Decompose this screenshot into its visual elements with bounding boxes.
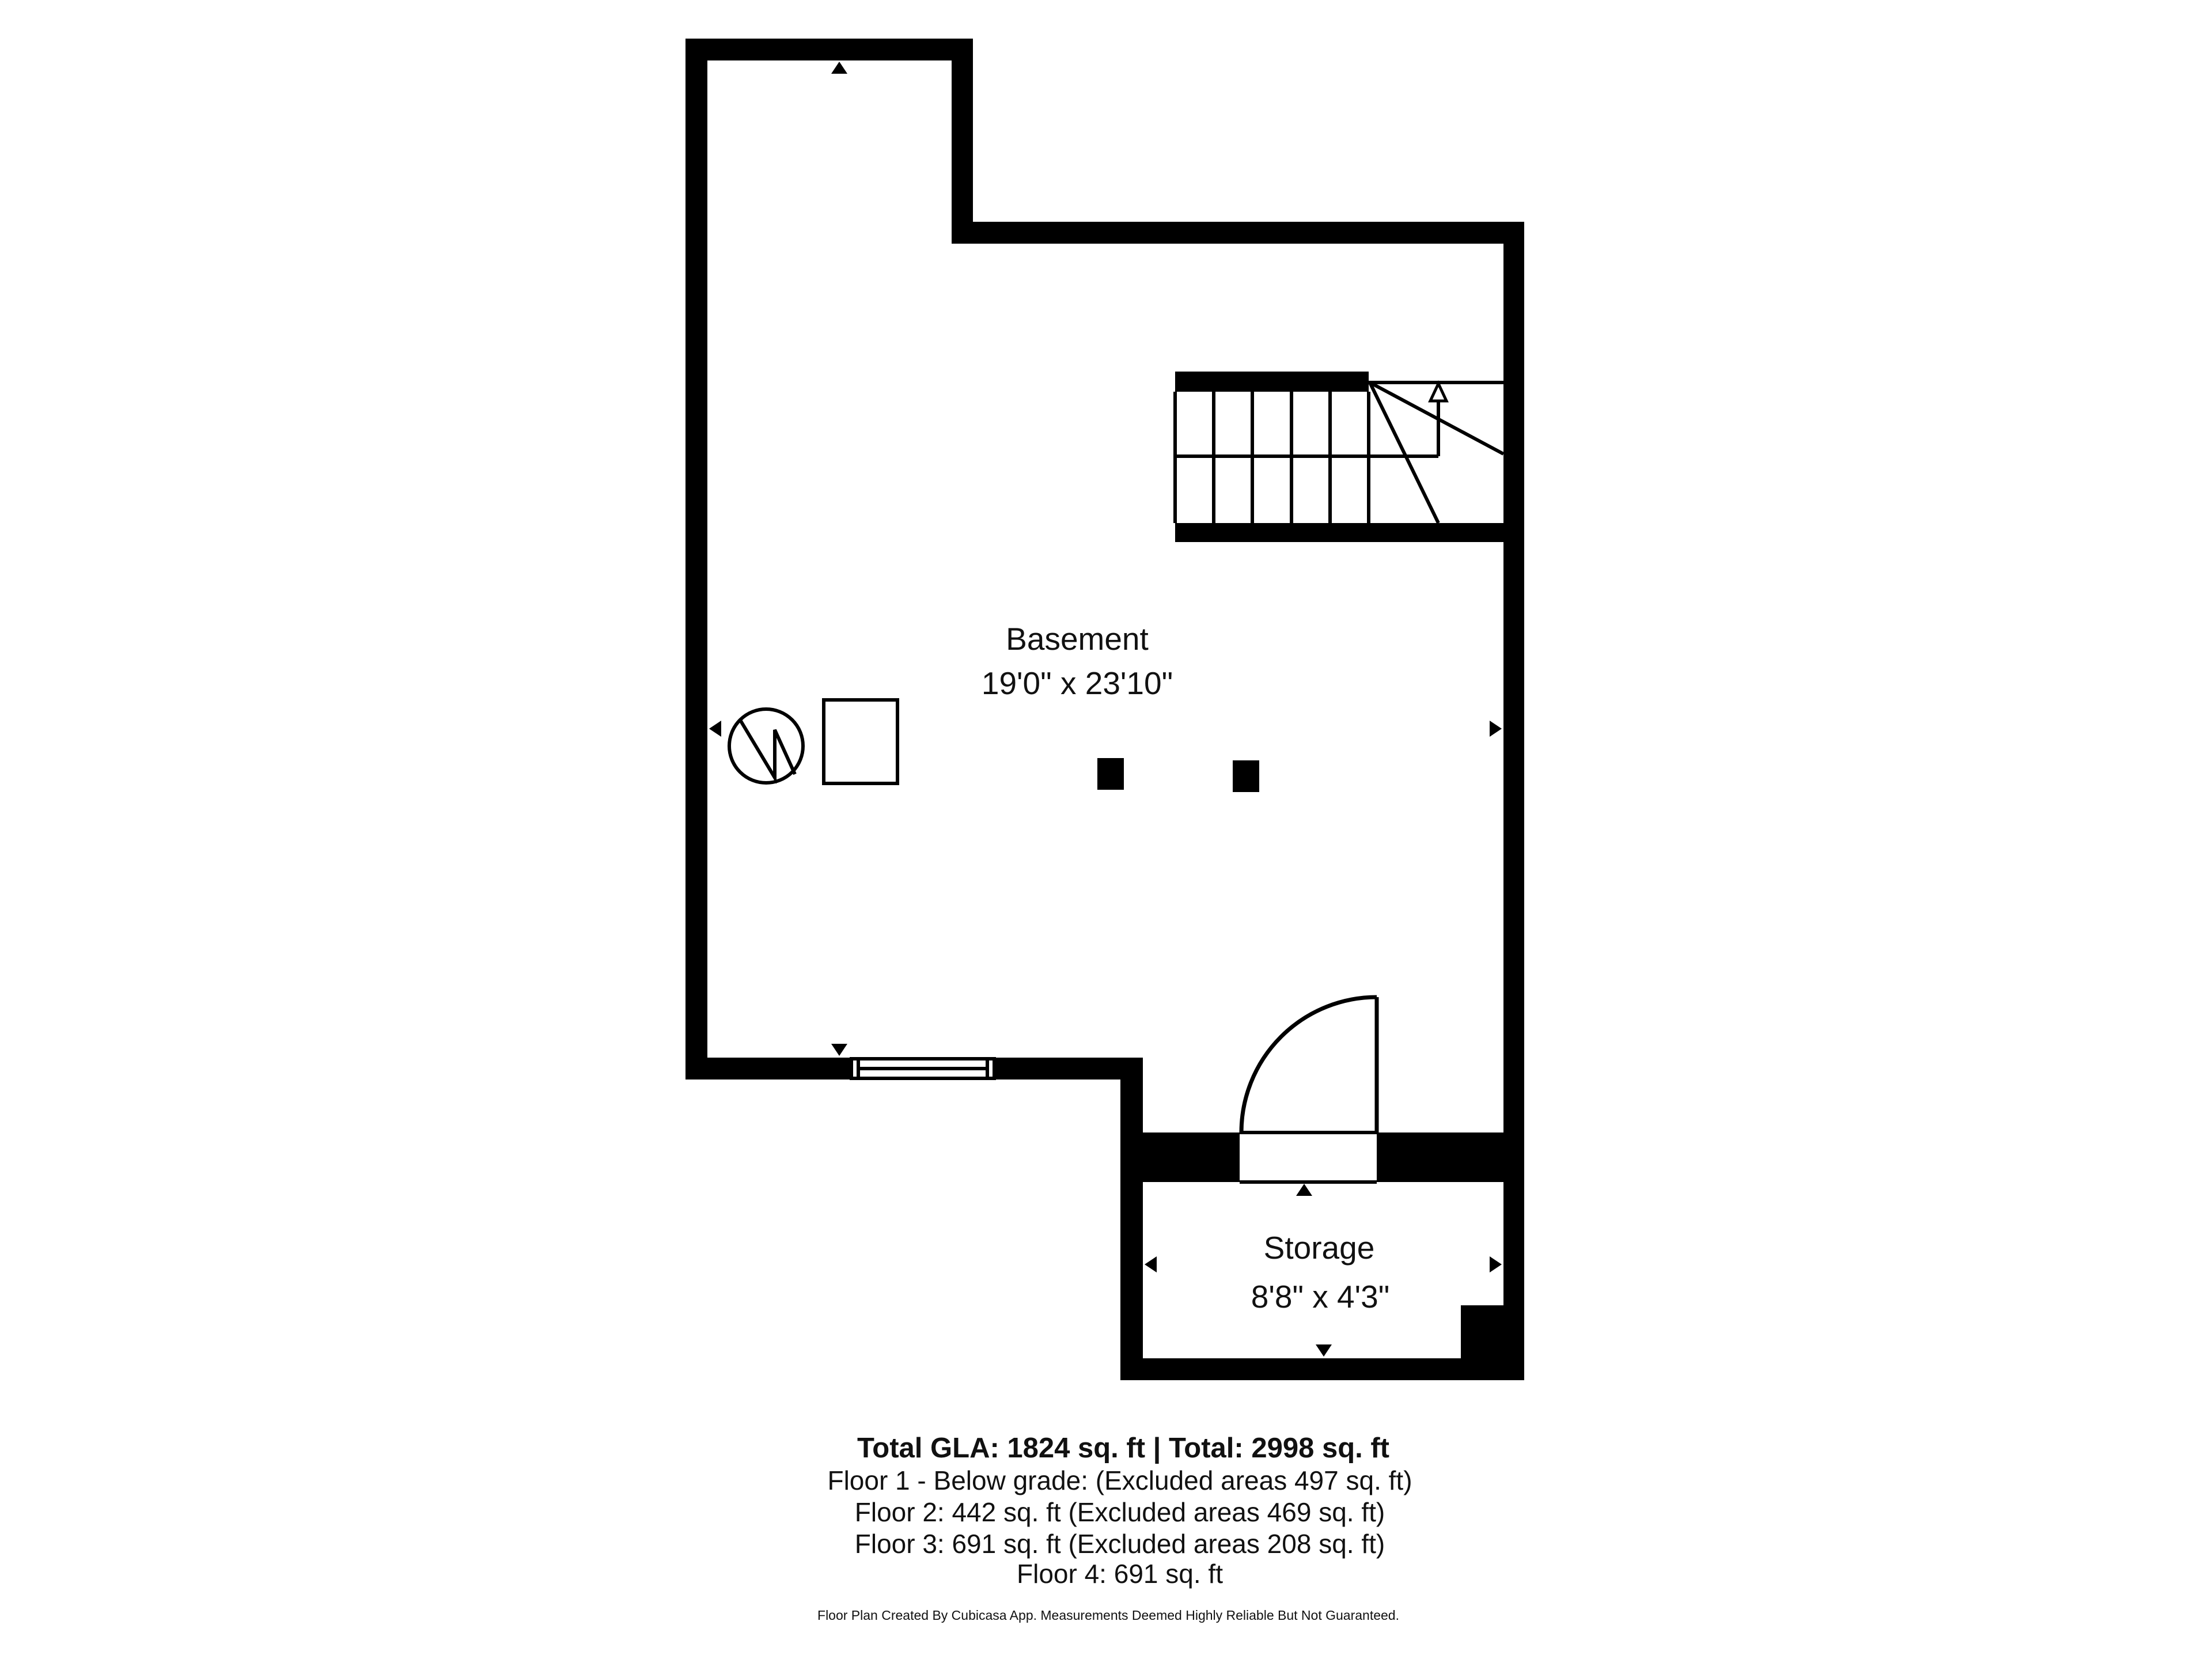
basement-room-dimensions: 19'0" x 23'10" — [982, 665, 1173, 701]
support-post — [1097, 758, 1124, 790]
floor-plan-canvas: Basement 19'0" x 23'10" Storage 8'8" x 4… — [0, 0, 2212, 1659]
door-opening — [1240, 1134, 1377, 1180]
window — [851, 1059, 994, 1078]
floor-4-line: Floor 4: 691 sq. ft — [1017, 1559, 1223, 1589]
support-post — [1233, 760, 1259, 792]
storage-room-label: Storage — [1264, 1230, 1375, 1266]
floor-1-line: Floor 1 - Below grade: (Excluded areas 4… — [827, 1465, 1412, 1495]
floor-3-line: Floor 3: 691 sq. ft (Excluded areas 208 … — [855, 1529, 1385, 1559]
page-background — [0, 0, 2212, 1659]
furnace — [824, 700, 897, 783]
floor-plan-page: Basement 19'0" x 23'10" Storage 8'8" x 4… — [0, 0, 2212, 1659]
stair-top-wall — [1175, 372, 1369, 392]
water-heater — [729, 709, 803, 783]
storage-room-dimensions: 8'8" x 4'3" — [1251, 1279, 1389, 1315]
total-gla-line: Total GLA: 1824 sq. ft | Total: 2998 sq.… — [857, 1433, 1389, 1464]
disclaimer-text: Floor Plan Created By Cubicasa App. Meas… — [817, 1608, 1399, 1623]
stair-bottom-wall — [1175, 523, 1503, 542]
basement-room-label: Basement — [1006, 621, 1149, 657]
floor-2-line: Floor 2: 442 sq. ft (Excluded areas 469 … — [855, 1497, 1385, 1527]
